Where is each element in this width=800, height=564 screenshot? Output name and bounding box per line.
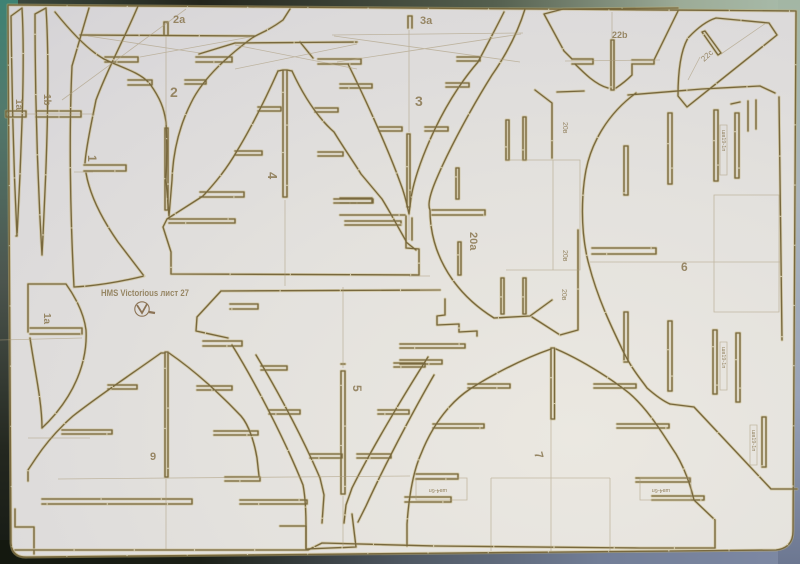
svg-text:1a: 1a	[13, 99, 24, 111]
svg-text:шв19-1п: шв19-1п	[720, 347, 726, 368]
svg-text:6: 6	[681, 260, 688, 274]
svg-text:шв19-1п: шв19-1п	[720, 130, 726, 151]
svg-text:22b: 22b	[612, 30, 628, 40]
svg-text:20в: 20в	[560, 289, 567, 301]
svg-text:1a: 1a	[41, 313, 52, 325]
svg-text:5: 5	[350, 385, 364, 392]
svg-text:20a: 20a	[467, 232, 479, 251]
svg-text:3: 3	[415, 93, 423, 109]
svg-text:2: 2	[170, 84, 178, 100]
svg-text:1b: 1b	[41, 94, 52, 106]
svg-text:9: 9	[150, 451, 156, 463]
svg-text:20в: 20в	[561, 250, 568, 262]
svg-text:1: 1	[85, 155, 99, 162]
svg-text:4: 4	[265, 172, 280, 180]
svg-text:3a: 3a	[420, 15, 433, 27]
svg-text:20в: 20в	[561, 122, 568, 134]
svg-text:2a: 2a	[173, 14, 186, 26]
svg-text:HMS Victorious лист 27: HMS Victorious лист 27	[101, 288, 189, 298]
svg-text:шв4-6п: шв4-6п	[652, 487, 670, 493]
svg-text:шв4-6п: шв4-6п	[429, 487, 447, 493]
svg-text:шв19-1п: шв19-1п	[750, 430, 756, 451]
